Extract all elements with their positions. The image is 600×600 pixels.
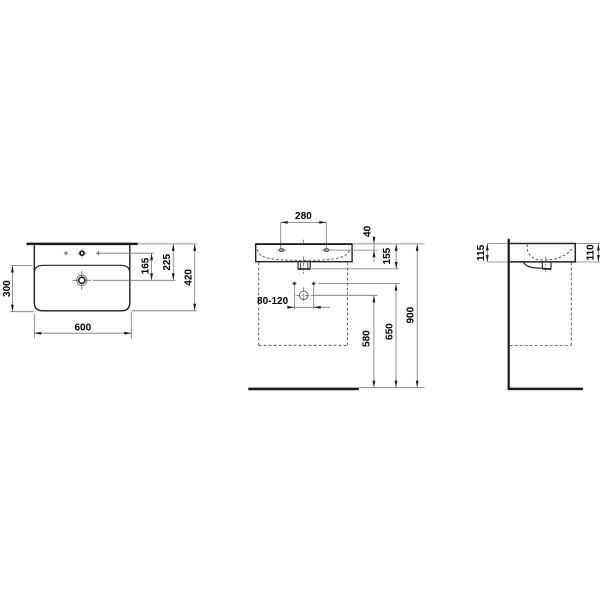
svg-text:300: 300 xyxy=(2,280,13,297)
svg-text:40: 40 xyxy=(363,225,374,237)
svg-text:580: 580 xyxy=(362,330,373,347)
svg-text:165: 165 xyxy=(140,257,151,274)
svg-text:420: 420 xyxy=(183,269,194,286)
svg-text:225: 225 xyxy=(162,254,173,271)
svg-text:650: 650 xyxy=(385,323,396,340)
svg-text:155: 155 xyxy=(382,247,393,264)
svg-text:115: 115 xyxy=(476,244,487,261)
svg-text:80-120: 80-120 xyxy=(257,296,289,307)
svg-text:110: 110 xyxy=(586,244,597,261)
svg-text:600: 600 xyxy=(74,322,91,333)
svg-text:280: 280 xyxy=(295,211,312,222)
svg-text:900: 900 xyxy=(406,306,417,323)
